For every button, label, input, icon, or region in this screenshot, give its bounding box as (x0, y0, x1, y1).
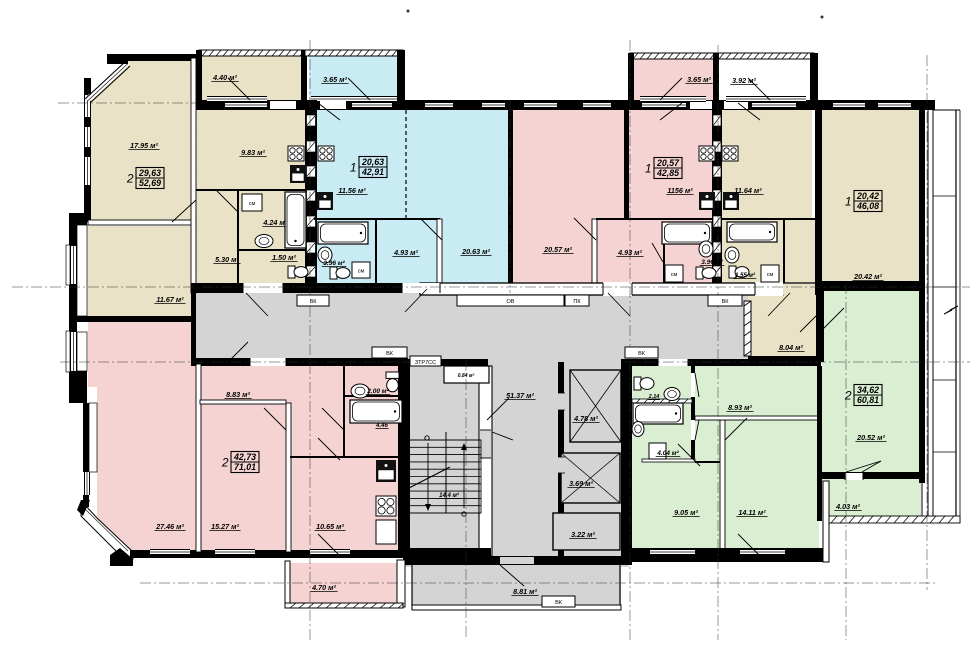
svg-text:см: см (671, 272, 678, 278)
svg-text:20.57 м²: 20.57 м² (543, 245, 572, 254)
svg-text:4.40 м²: 4.40 м² (212, 73, 237, 82)
svg-text:5.30 м²: 5.30 м² (215, 255, 239, 264)
svg-text:2.14: 2.14 (648, 394, 660, 400)
svg-text:2.00 м²: 2.00 м² (366, 388, 389, 395)
svg-text:4.70 м²: 4.70 м² (311, 583, 336, 592)
svg-text:2: 2 (126, 172, 134, 186)
svg-text:11.56 м²: 11.56 м² (338, 186, 366, 195)
svg-text:4.78 м²: 4.78 м² (573, 414, 598, 423)
svg-text:3.96 м²: 3.96 м² (323, 260, 345, 267)
svg-text:9.05 м²: 9.05 м² (674, 508, 698, 517)
svg-text:см: см (358, 269, 365, 275)
svg-text:см: см (767, 272, 774, 278)
svg-text:20,63: 20,63 (361, 157, 384, 167)
svg-text:20,42: 20,42 (856, 191, 879, 201)
svg-text:15.27 м²: 15.27 м² (211, 522, 239, 531)
svg-text:9.83 м²: 9.83 м² (241, 148, 265, 157)
svg-text:11.64 м²: 11.64 м² (734, 186, 762, 195)
svg-text:см: см (249, 201, 256, 207)
svg-text:20,57: 20,57 (656, 158, 680, 168)
svg-text:ВК: ВК (722, 299, 730, 305)
svg-text:42,85: 42,85 (656, 168, 679, 178)
svg-text:1: 1 (845, 195, 852, 209)
svg-text:51.37 м²: 51.37 м² (506, 391, 534, 400)
svg-text:14.4 м²: 14.4 м² (439, 492, 460, 499)
svg-text:29,63: 29,63 (138, 168, 161, 178)
svg-text:2: 2 (844, 389, 852, 403)
svg-text:4.46: 4.46 (375, 423, 388, 429)
svg-text:ОВ: ОВ (507, 299, 515, 305)
svg-text:1.55 м²: 1.55 м² (735, 272, 756, 279)
svg-text:60,81: 60,81 (857, 395, 879, 405)
svg-text:ЗТР7СС: ЗТР7СС (415, 360, 436, 366)
svg-text:42,91: 42,91 (361, 167, 384, 177)
svg-text:8.81 м²: 8.81 м² (513, 587, 537, 596)
svg-text:1: 1 (350, 161, 357, 175)
svg-text:8.04 м²: 8.04 м² (779, 343, 803, 352)
svg-text:46,08: 46,08 (856, 201, 879, 211)
svg-text:3.92 м²: 3.92 м² (732, 76, 756, 85)
svg-text:ВК: ВК (310, 299, 318, 305)
svg-text:4.04 м²: 4.04 м² (656, 450, 679, 457)
svg-text:71,01: 71,01 (234, 462, 256, 472)
svg-text:3.96 м²: 3.96 м² (701, 259, 723, 266)
svg-text:20.52 м²: 20.52 м² (856, 433, 885, 442)
svg-text:4.24 м: 4.24 м (262, 218, 285, 227)
svg-text:1156 м²: 1156 м² (667, 186, 693, 195)
svg-text:4.93 м²: 4.93 м² (617, 248, 642, 257)
svg-text:8.93 м²: 8.93 м² (728, 403, 752, 412)
svg-text:3.65 м²: 3.65 м² (323, 75, 347, 84)
svg-text:52,69: 52,69 (139, 178, 161, 188)
svg-text:20.63 м²: 20.63 м² (461, 247, 490, 256)
svg-text:42,73: 42,73 (233, 452, 256, 462)
svg-text:11.67 м²: 11.67 м² (156, 295, 184, 304)
svg-text:8.83 м²: 8.83 м² (226, 390, 250, 399)
svg-text:ВК: ВК (386, 351, 394, 357)
svg-text:1.50 м²: 1.50 м² (272, 253, 296, 262)
svg-text:3.65 м²: 3.65 м² (687, 75, 711, 84)
svg-text:17.95 м²: 17.95 м² (130, 141, 158, 150)
svg-text:10.65 м²: 10.65 м² (316, 522, 344, 531)
svg-text:4.03 м²: 4.03 м² (835, 502, 860, 511)
svg-text:3.69 м²: 3.69 м² (569, 479, 593, 488)
svg-text:14.11 м²: 14.11 м² (738, 508, 766, 517)
svg-text:4.93 м²: 4.93 м² (393, 248, 418, 257)
svg-text:ВК: ВК (638, 351, 646, 357)
svg-text:34,62: 34,62 (857, 385, 879, 395)
svg-text:2: 2 (221, 456, 229, 470)
svg-text:20.42 м²: 20.42 м² (853, 272, 882, 281)
svg-text:ВК: ВК (555, 600, 563, 606)
svg-text:1: 1 (645, 162, 652, 176)
svg-text:ПК: ПК (573, 299, 581, 305)
svg-text:27.46 м²: 27.46 м² (155, 522, 184, 531)
svg-text:3.22 м²: 3.22 м² (571, 530, 595, 539)
